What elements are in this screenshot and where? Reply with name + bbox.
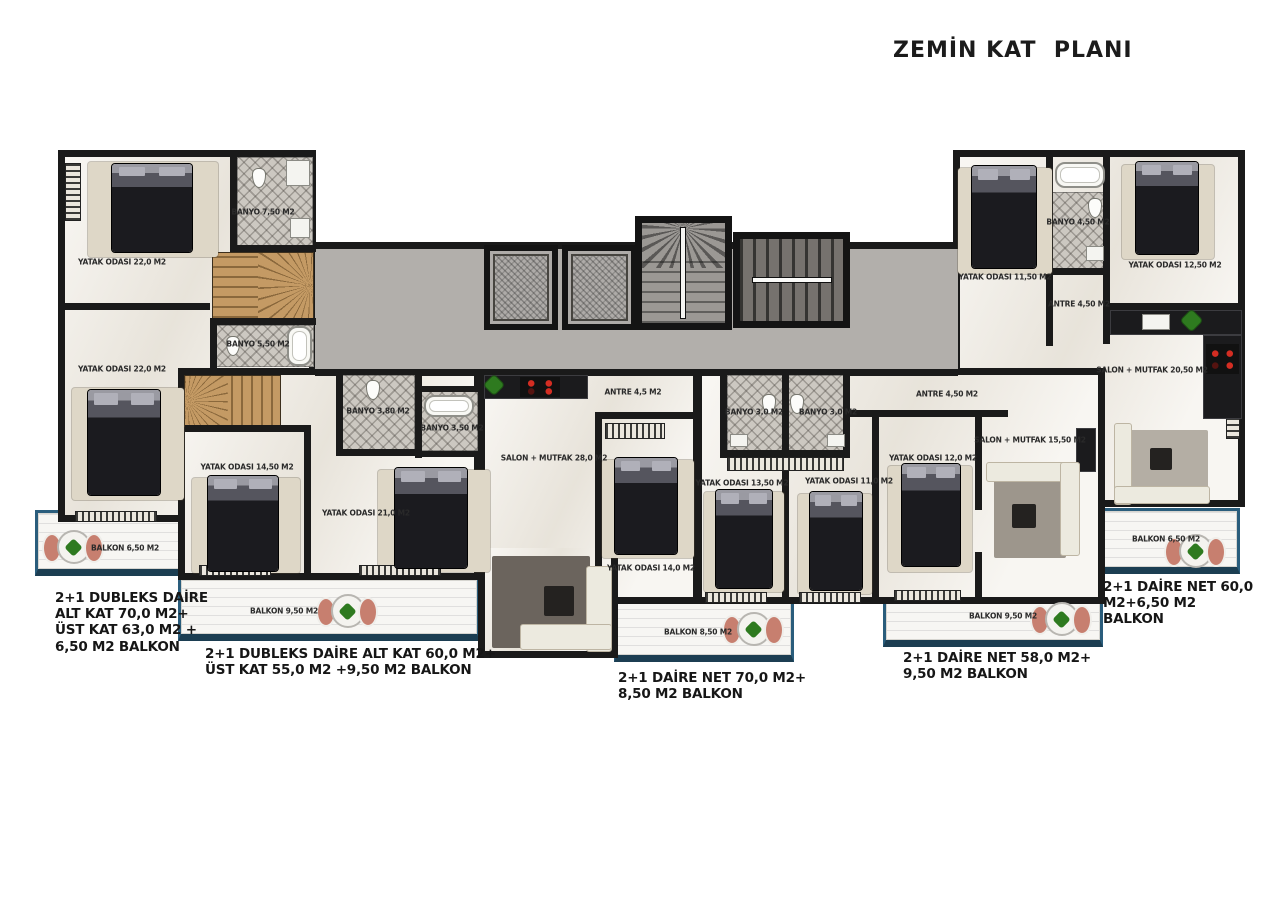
interior-wall [210,318,316,325]
apartment-summary: 2+1 DUBLEKS DAİRE ALT KAT 60,0 M2+ ÜST K… [205,646,496,678]
interior-wall [1103,303,1245,310]
wardrobe [728,458,843,470]
side-staircase [733,232,850,328]
interior-wall [210,318,217,373]
room-label-balcony: BALKON 8,50 M2 [664,628,732,637]
interior-wall [415,451,481,457]
room-label-entry: ANTRE 4,50 M2 [916,390,978,399]
bed-furniture [902,464,960,566]
bathtub-icon [287,326,312,366]
stair-divider [680,227,686,319]
room-label-balcony: BALKON 9,50 M2 [250,607,318,616]
plan-title: ZEMİN KAT PLANI [893,38,1133,63]
room-label-bathroom: BANYO 3,0 M2 [799,408,857,417]
bed-furniture [972,166,1036,268]
washer-unit [730,434,748,447]
interior-wall [595,412,700,419]
room-label-bedroom: YATAK ODASI 12,0 M2 [889,454,977,463]
bathtub-icon [1055,162,1105,188]
room-label-balcony: BALKON 6,50 M2 [91,544,159,553]
room-label-bathroom: BANYO 3,0 M2 [725,408,783,417]
bathtub-icon [424,395,474,417]
interior-wall [230,154,237,249]
sofa-furniture [520,624,612,650]
room-label-balcony: BALKON 9,50 M2 [969,612,1037,621]
coffee-table [544,586,574,616]
interior-wall [304,425,311,575]
bed-furniture [810,492,862,590]
bed-furniture [112,164,192,252]
window-railing [76,512,156,521]
apartment-summary: 2+1 DAİRE NET 60,0 M2+6,50 M2 BALKON [1103,579,1273,628]
dining-set [1030,600,1092,640]
apartment-summary: 2+1 DAİRE NET 70,0 M2+ 8,50 M2 BALKON [618,670,806,702]
room-label-bedroom: YATAK ODASI 11,50 M2 [959,273,1052,282]
interior-wall [415,372,422,458]
room-label-bedroom: YATAK ODASI 22,0 M2 [78,258,166,267]
interior-wall [230,245,316,252]
sofa-furniture [1060,462,1080,556]
room-label-bathroom: BANYO 5,50 M2 [226,340,289,349]
interior-wall [185,425,311,432]
wardrobe [606,424,664,438]
interior-wall [848,410,1008,417]
room-label-balcony: BALKON 6,50 M2 [1132,535,1200,544]
coffee-table [1012,504,1036,528]
shower-unit [286,160,310,186]
washer-unit [1086,246,1104,261]
stove-icon [520,377,560,397]
elevator-shaft-2 [562,245,637,330]
interior-wall [336,372,343,455]
duplex-mid-staircase [185,376,280,426]
room-label-bathroom: BANYO 3,50 M2 [420,424,483,433]
bed-furniture [88,390,160,495]
duplex-left-staircase [213,253,313,318]
interior-wall [336,449,422,456]
room-label-bedroom: YATAK ODASI 14,50 M2 [201,463,294,472]
room-label-bedroom: YATAK ODASI 13,50 M2 [696,479,789,488]
chair-icon [1206,537,1226,567]
bed-furniture [1136,162,1198,254]
apartment-summary: 2+1 DUBLEKS DAİRE ALT KAT 70,0 M2+ ÜST K… [55,590,208,655]
room-label-bedroom: YATAK ODASI 12,50 M2 [1129,261,1222,270]
kitchen-counter [1110,310,1242,335]
interior-wall [1103,154,1110,344]
stair-rail [752,277,832,283]
room-label-bedroom: YATAK ODASI 14,0 M2 [607,564,695,573]
elevator-shaft-1 [484,245,558,330]
room-label-living: SALON + MUTFAK 20,50 M2 [1096,366,1207,375]
wardrobe [66,164,80,220]
chair-icon [358,597,378,627]
kitchen-sink [1142,314,1170,330]
room-label-living: SALON + MUTFAK 15,50 M2 [974,436,1085,445]
interior-wall [415,386,481,392]
room-label-bedroom: YATAK ODASI 21,0 M2 [322,509,410,518]
interior-wall [722,450,850,457]
washer-unit [290,218,310,238]
interior-wall [62,303,210,310]
room-label-bedroom: YATAK ODASI 22,0 M2 [78,365,166,374]
room-label-bedroom: YATAK ODASI 11,0 M2 [805,477,893,486]
window-railing [800,593,860,602]
coffee-table [1150,448,1172,470]
interior-wall [1046,268,1110,275]
bed-furniture [716,490,772,588]
floor-plan: ZEMİN KAT PLANI [0,0,1273,900]
interior-wall [872,410,879,602]
room-label-bathroom: BANYO 3,80 M2 [346,407,409,416]
chair-icon [764,615,784,645]
bed-furniture [615,458,677,554]
stove-icon [1206,344,1239,374]
room-label-entry: ANTRE 4,5 M2 [605,388,662,397]
apartment-summary: 2+1 DAİRE NET 58,0 M2+ 9,50 M2 BALKON [903,650,1091,682]
bed-furniture [395,468,467,568]
chair-icon [1072,605,1092,635]
interior-wall [975,552,982,602]
room-label-living: SALON + MUTFAK 28,0 M2 [501,454,607,463]
washer-unit [827,434,845,447]
room-label-entry: ANTRE 4,50 M2 [1048,300,1110,309]
bed-furniture [208,476,278,571]
sofa-furniture [1114,486,1210,504]
window-railing [895,591,960,600]
central-staircase [635,216,732,330]
room-label-bathroom: BANYO 7,50 M2 [231,208,294,217]
window-railing [706,593,766,602]
room-label-bathroom: BANYO 4,50 M2 [1046,218,1109,227]
dining-set [316,592,378,632]
